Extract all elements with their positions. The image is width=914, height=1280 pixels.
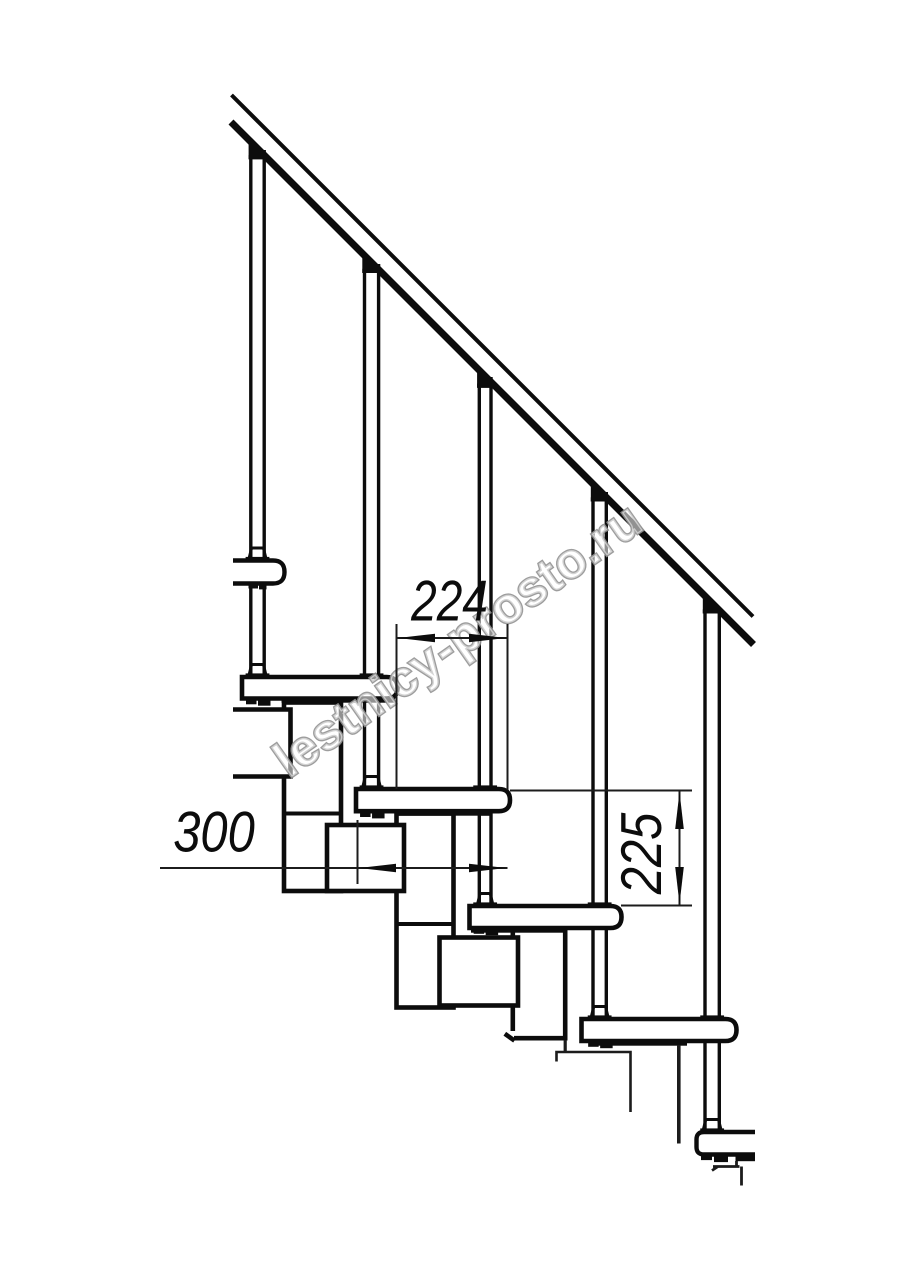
svg-text:224: 224 — [410, 570, 488, 634]
svg-text:300: 300 — [173, 801, 255, 865]
svg-text:225: 225 — [610, 812, 674, 895]
